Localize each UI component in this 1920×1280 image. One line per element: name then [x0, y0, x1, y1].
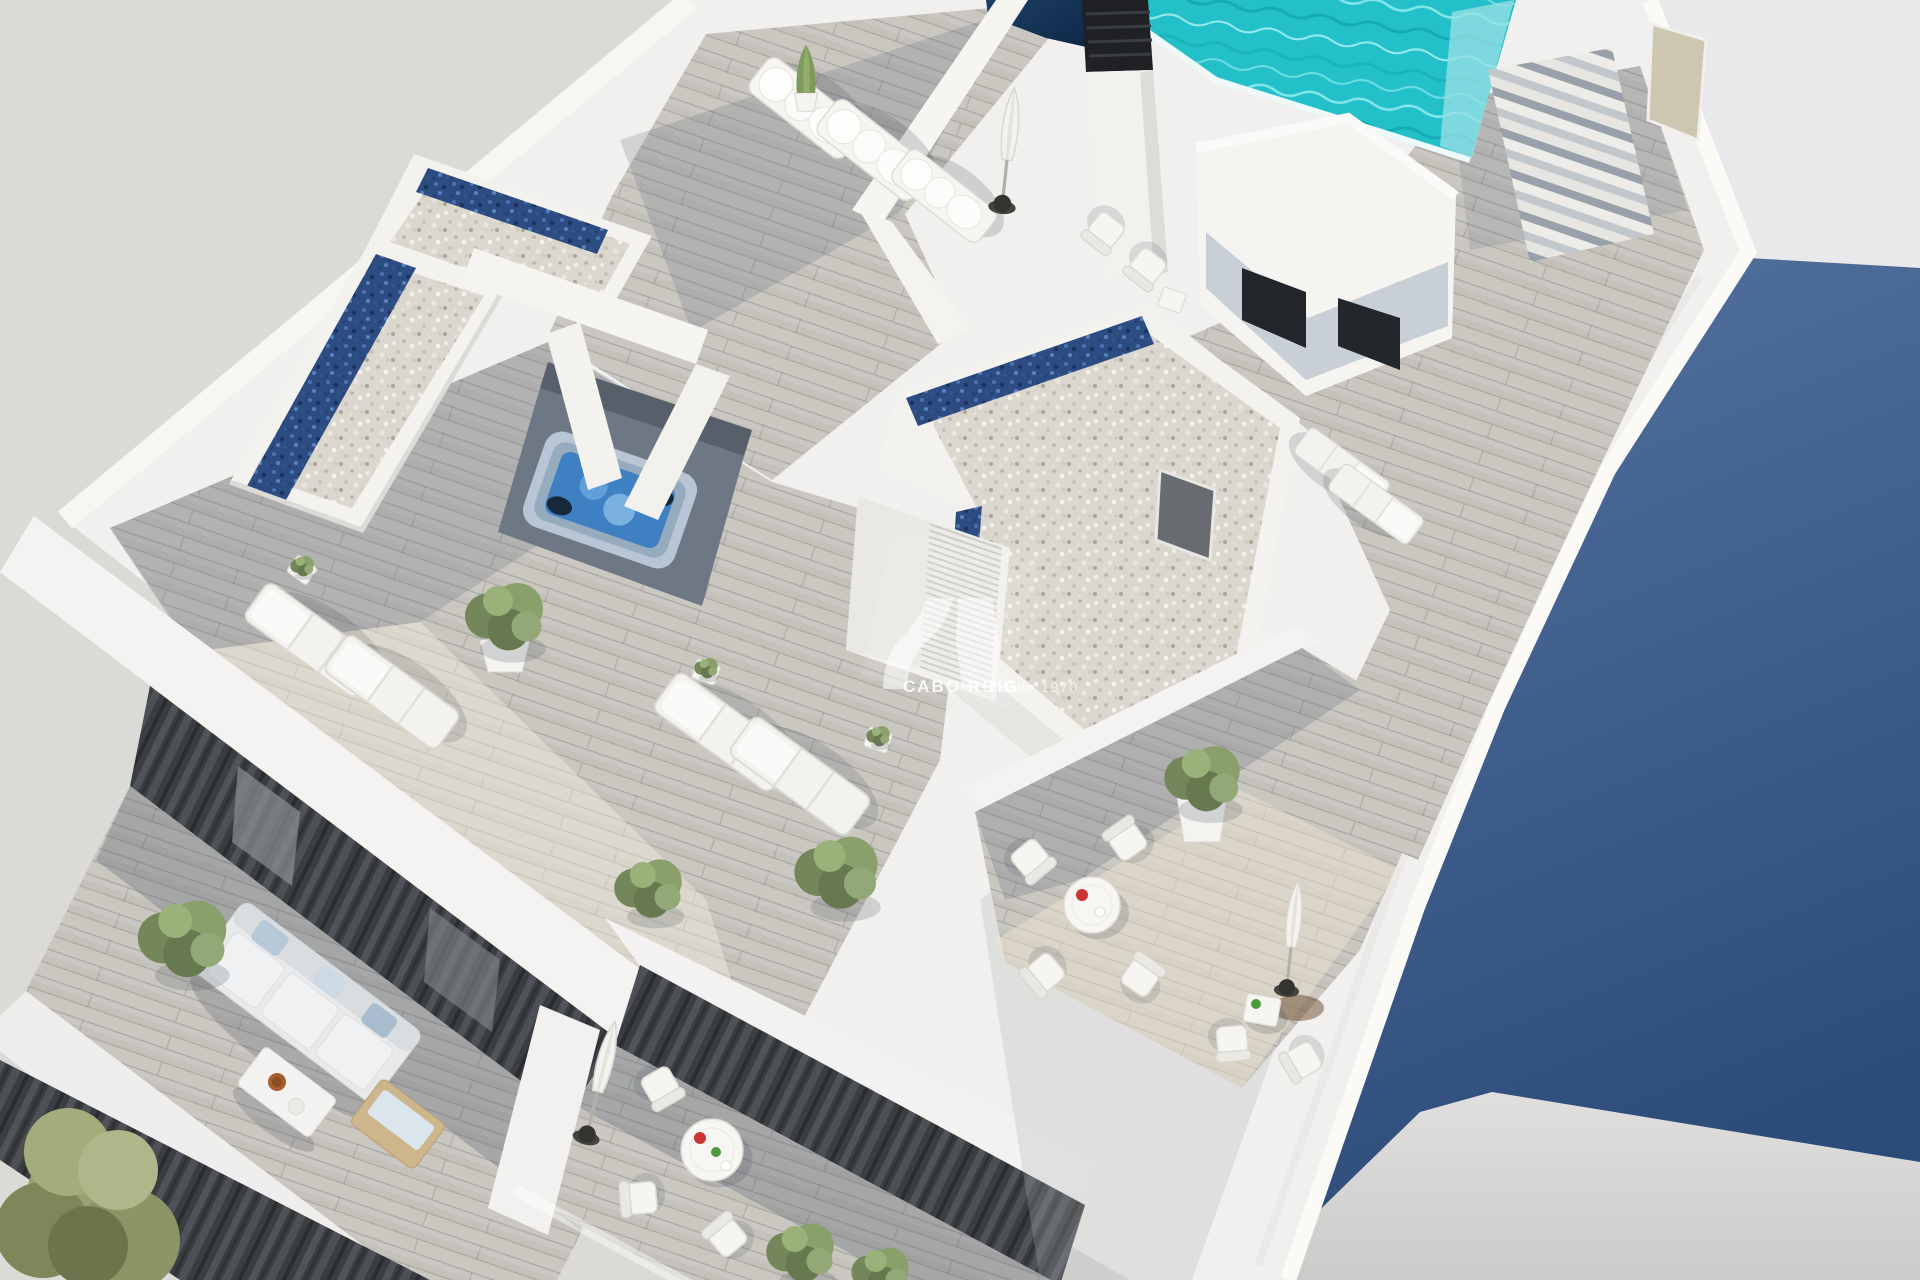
roof-door — [1648, 24, 1706, 140]
table-plate — [1095, 907, 1105, 917]
table-item-red — [694, 1132, 706, 1144]
table-plate — [721, 1161, 731, 1171]
logo-block — [956, 598, 1000, 688]
table-item-green — [711, 1147, 721, 1157]
watermark-tagline-text: Desde 1970 — [988, 679, 1079, 695]
rooftop-render-svg: CABO ROIG Desde 1970 — [0, 0, 1920, 1280]
table-item-red — [1076, 889, 1088, 901]
render-image: CABO ROIG Desde 1970 — [0, 0, 1920, 1280]
table-item-green — [1251, 999, 1261, 1009]
